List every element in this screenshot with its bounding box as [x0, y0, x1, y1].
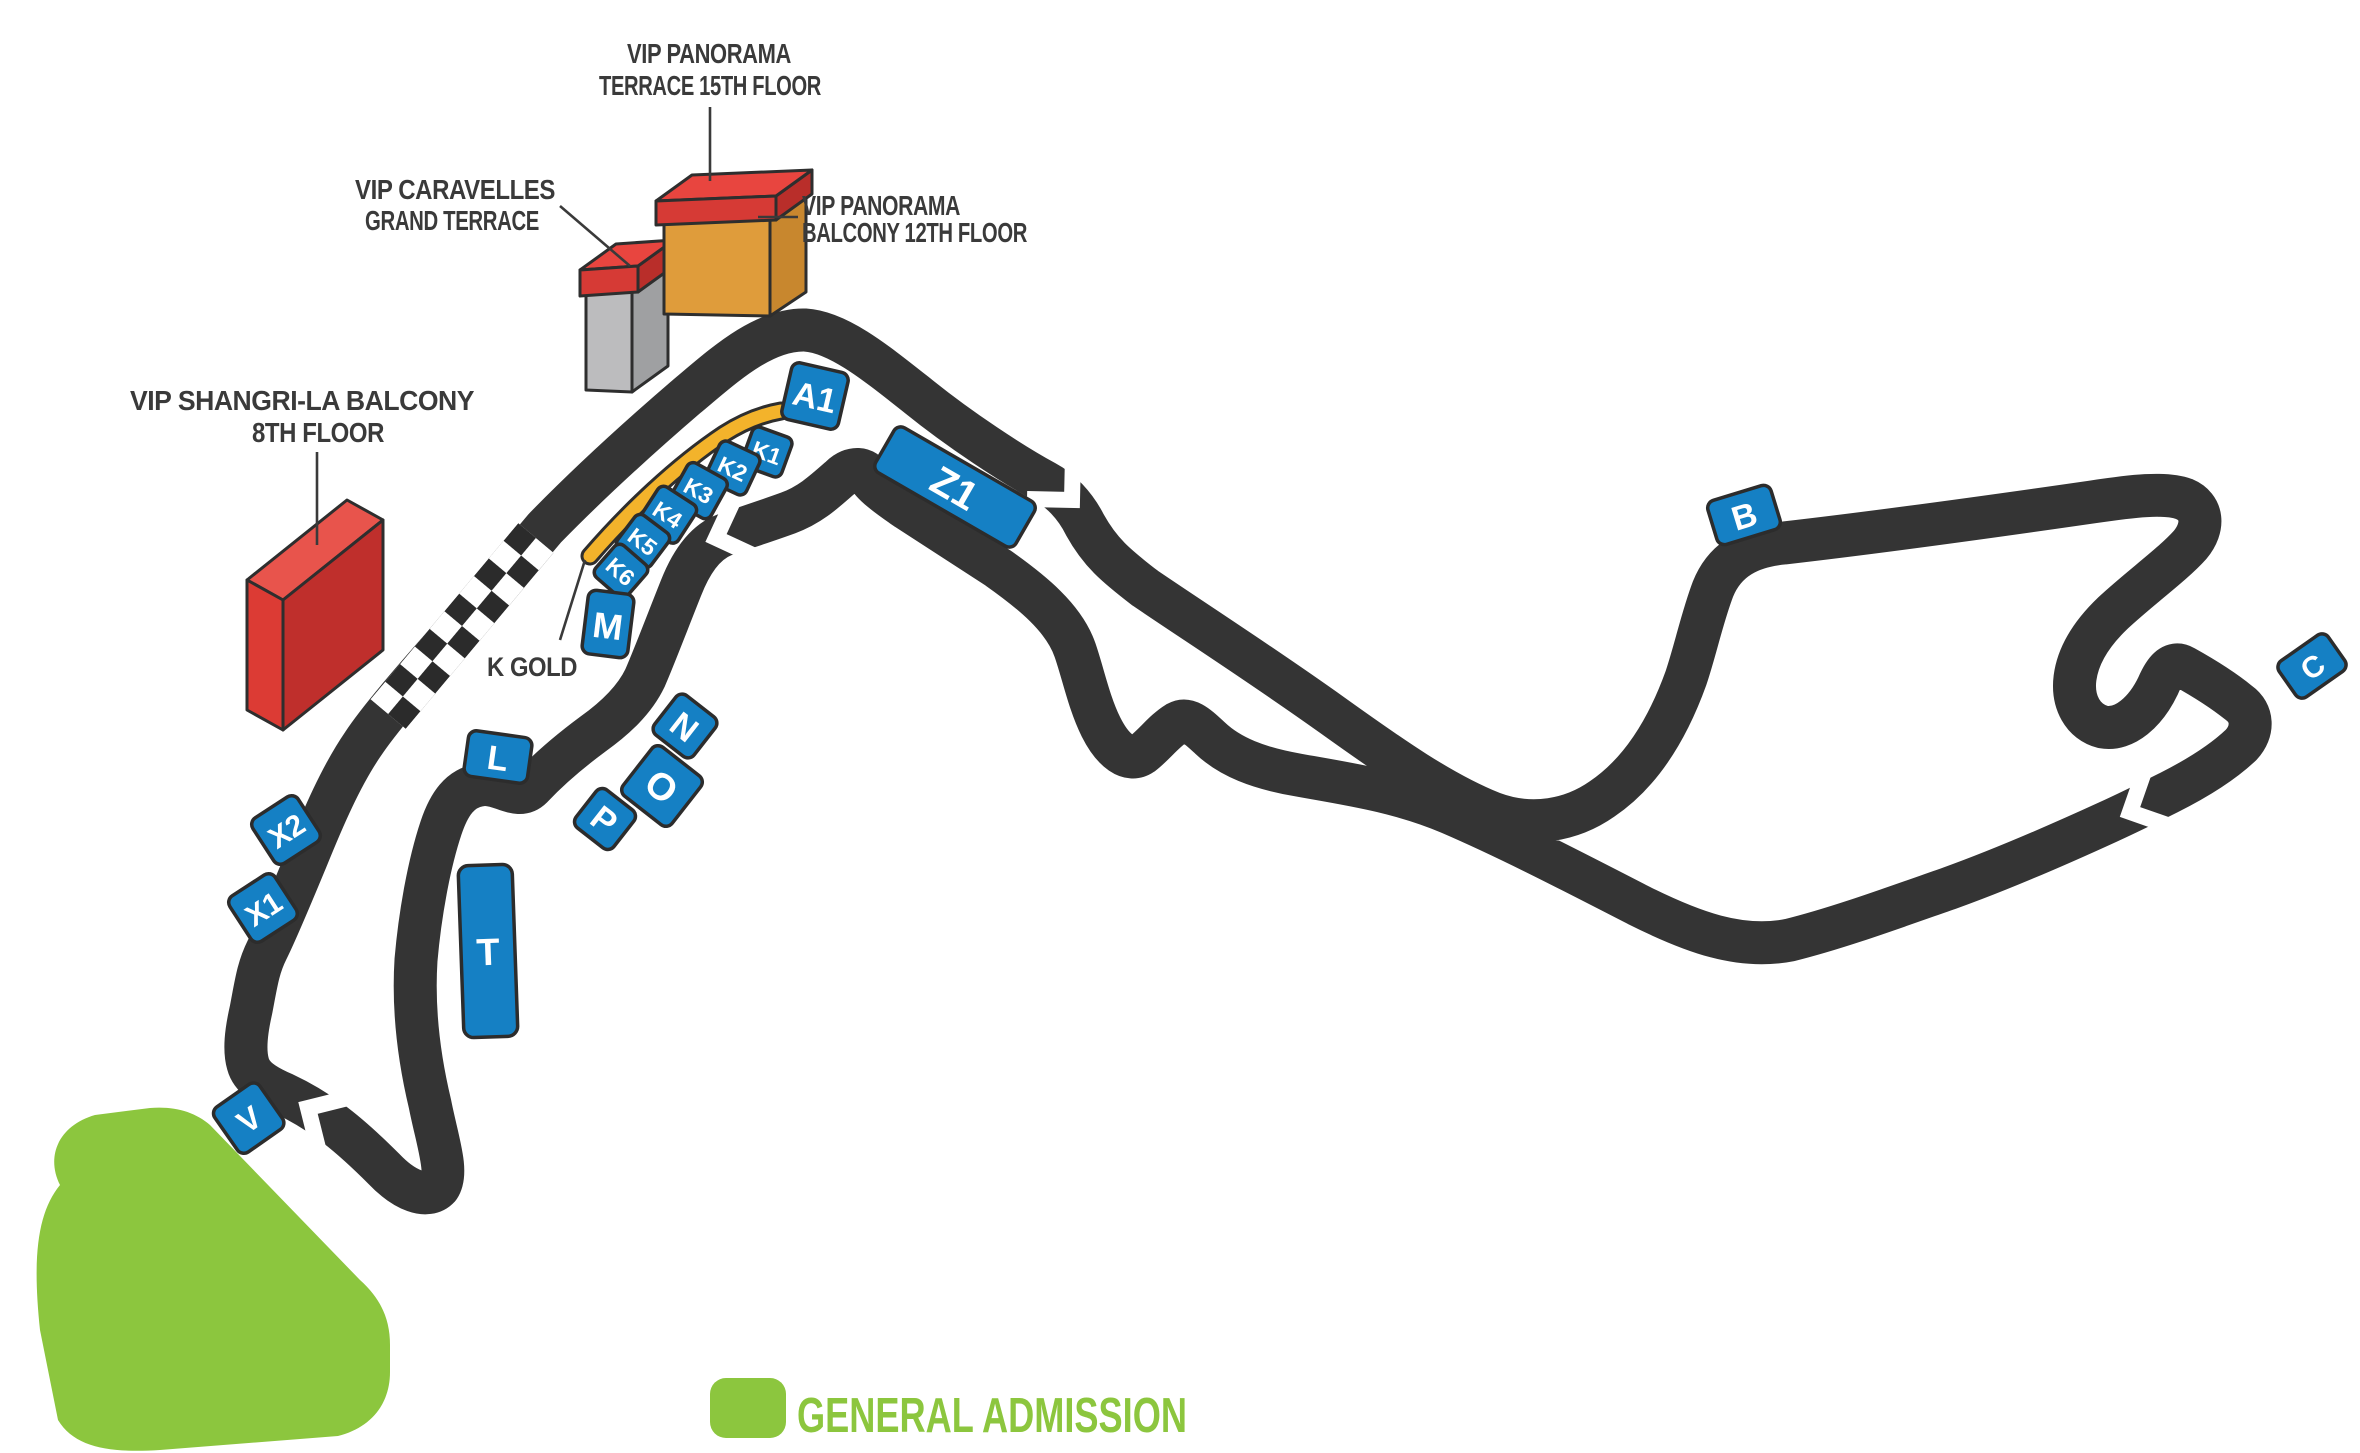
label-k-gold: K GOLD: [487, 652, 577, 682]
label-panorama-terrace-1: VIP PANORAMA: [627, 38, 791, 69]
vip-shangri-la-box[interactable]: [247, 500, 383, 730]
race-track: [246, 330, 2250, 1193]
grandstand-t-label: T: [476, 932, 501, 975]
grandstand-m[interactable]: M: [581, 589, 634, 658]
label-caravelles-2: GRAND TERRACE: [365, 205, 539, 236]
grandstand-a1[interactable]: A1: [780, 361, 850, 431]
label-shangri-la-1: VIP SHANGRI-LA BALCONY: [130, 385, 475, 416]
general-admission-area[interactable]: [37, 1108, 390, 1451]
legend-swatch: [710, 1378, 786, 1438]
start-finish-checker: [370, 523, 553, 729]
label-panorama-balcony-2: BALCONY 12TH FLOOR: [802, 217, 1027, 248]
vip-panorama-box[interactable]: [656, 170, 812, 316]
grandstand-l[interactable]: L: [463, 730, 533, 784]
leader-line-k-gold: [560, 560, 585, 640]
leader-line-caravelles: [560, 206, 630, 266]
grandstand-c[interactable]: C: [2275, 631, 2349, 701]
legend-label: GENERAL ADMISSION: [797, 1389, 1187, 1443]
label-panorama-terrace-2: TERRACE 15TH FLOOR: [599, 70, 821, 101]
grandstand-t[interactable]: T: [458, 864, 518, 1038]
label-shangri-la-2: 8TH FLOOR: [252, 417, 384, 448]
label-caravelles-1: VIP CARAVELLES: [355, 174, 555, 205]
grandstand-m-label: M: [590, 604, 625, 648]
circuit-seating-map: VIP PANORAMA TERRACE 15TH FLOOR VIP CARA…: [0, 0, 2360, 1453]
